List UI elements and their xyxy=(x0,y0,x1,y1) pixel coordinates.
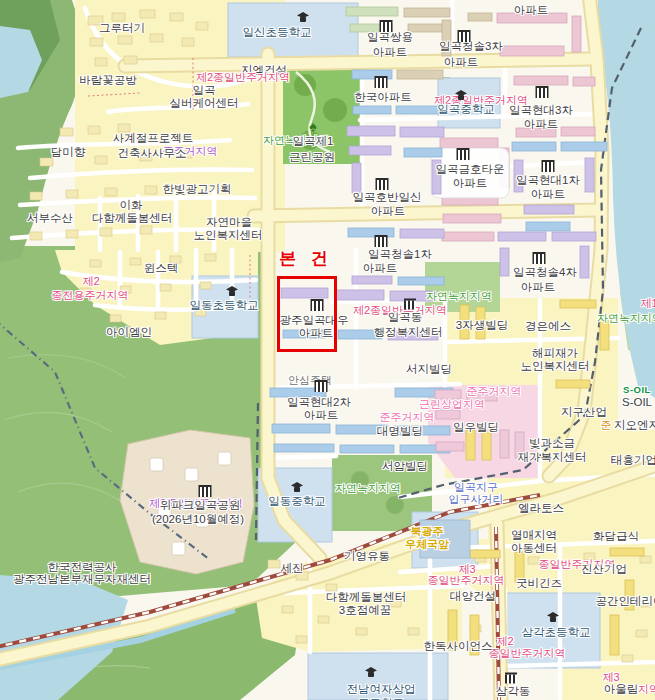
map-label: 3자생빌딩 xyxy=(456,319,508,332)
map-label: 일곡청솔1차 xyxy=(368,248,432,261)
map-label: 아파트 xyxy=(524,118,559,131)
map-label: 우체국앞 xyxy=(405,538,449,550)
apartment-icon xyxy=(542,160,555,172)
map-label: 준주거지역 xyxy=(467,385,522,397)
government-building-icon xyxy=(505,673,517,684)
map-label: 태흥기업 xyxy=(611,454,655,467)
map-label: 서암빌딩 xyxy=(382,460,428,473)
map-label: 아파트 xyxy=(363,262,398,275)
map-label: 윈스텍 xyxy=(144,262,179,275)
map-label: 아파트 xyxy=(521,281,556,294)
map-label: 자연녹지지역 xyxy=(597,312,655,324)
map-label: 일신초등학교 xyxy=(243,26,312,39)
map-label: 건축사사무소 xyxy=(118,147,187,160)
map-label: 광주전남본부재무자재센터 xyxy=(13,573,151,586)
map-label: 위파크일곡공원 xyxy=(160,499,241,512)
map-label: 일동중학교 xyxy=(268,495,326,508)
map-label: 다함께돌봄센터 xyxy=(326,591,407,604)
map-label: 일곡금호타운 xyxy=(436,163,505,176)
map-label: 빛과소금 xyxy=(529,437,575,450)
map-label: 종일반주거지역 xyxy=(428,574,505,586)
map-label: 지구산업 xyxy=(561,406,607,419)
map-label: 3호점예꿈 xyxy=(339,604,391,617)
map-label: 노인복지센터 xyxy=(521,360,590,373)
map-label: 이화 xyxy=(120,199,143,212)
map-label: 일곡쌍용 xyxy=(367,31,413,44)
map-label: 사계절프로젝트 xyxy=(113,132,194,145)
apartment-icon xyxy=(457,148,470,160)
map-label: 아울림 xyxy=(604,683,639,696)
map-label: 한국전력공사 xyxy=(48,561,117,574)
map-label: 아파트 xyxy=(373,46,408,59)
map-canvas[interactable]: 그루터기일신초등학교아파트일곡쌍용아파트일곡청솔3차아파트바람꽃공방일곡실버케어… xyxy=(0,0,655,700)
map-label: 아이엠인 xyxy=(106,326,152,339)
map-label: 담미향 xyxy=(51,146,86,159)
map-label: 진산기업 xyxy=(581,563,627,576)
tree-icon: ♠ xyxy=(309,119,316,133)
map-label: 근린상업지역 xyxy=(419,398,485,410)
map-label: 공간인테리어 xyxy=(596,595,655,608)
map-label: 노인복지센터 xyxy=(194,229,263,242)
map-label: 아파트 xyxy=(531,188,566,201)
map-label: 아파트 xyxy=(514,4,549,17)
map-label: 서부수산 xyxy=(27,212,73,225)
map-label: 그루터기 xyxy=(99,22,145,35)
map-label: 제2 xyxy=(82,275,99,287)
apartment-icon xyxy=(199,485,212,497)
map-label: 일곡현대2차 xyxy=(287,396,351,409)
map-label: 지오엔지 xyxy=(614,419,655,432)
map-label: 엘라토스 xyxy=(518,502,564,515)
government-building-icon xyxy=(404,299,416,310)
map-label: 기영유통 xyxy=(344,550,390,563)
map-label: 일곡동 xyxy=(388,311,423,324)
map-label: 전남여자상업 xyxy=(347,683,416,696)
school-icon xyxy=(226,286,238,296)
school-icon xyxy=(297,12,309,22)
map-label: 아파트 xyxy=(453,177,488,190)
apartment-icon xyxy=(375,76,388,88)
map-label: 제2종일반주거지역 xyxy=(196,71,290,83)
map-label: 제2 xyxy=(496,635,513,647)
map-label: 삼각동 xyxy=(496,685,531,698)
map-label: 일곡청솔3차 xyxy=(439,40,503,53)
map-label: 입구사거리 xyxy=(449,493,504,505)
map-label: 실버케어센터 xyxy=(170,97,239,110)
map-label: 일곡현대1차 xyxy=(516,174,580,187)
map-label: 준 xyxy=(601,419,612,431)
map-label: 세진 xyxy=(281,562,304,575)
map-label: 해피재가 xyxy=(532,347,578,360)
map-label: 일곡청솔4차 xyxy=(513,266,577,279)
map-label: 북광주 xyxy=(411,525,444,537)
map-label: 행정복지센터 xyxy=(374,326,443,339)
apartment-icon xyxy=(315,380,328,392)
map-label: 근린공원 xyxy=(289,151,335,164)
map-label: 지역 xyxy=(638,683,655,695)
map-label: 경은에스 xyxy=(525,320,571,333)
subject-property-box xyxy=(277,276,337,352)
map-label: 일곡호반일신 xyxy=(353,191,422,204)
map-label: 일곡 xyxy=(193,84,216,97)
map-label: 자연마을 xyxy=(206,216,252,229)
school-icon xyxy=(547,612,559,622)
apartment-icon xyxy=(458,30,471,42)
map-label: 일곡중학교 xyxy=(437,103,495,116)
map-label: S-OIL xyxy=(623,385,651,395)
map-label: 한독사이언스 xyxy=(424,640,493,653)
map-label: 종일반주거지역 xyxy=(489,647,566,659)
map-label: S-OIL xyxy=(622,396,652,409)
map-label: 삼각초등학교 xyxy=(522,626,591,639)
map-label: 일동초등학교 xyxy=(190,299,259,312)
map-label: 제3 xyxy=(602,671,619,683)
map-label: 한빛광고기획 xyxy=(163,183,232,196)
map-label: 제1 xyxy=(640,297,655,309)
map-label: 한국아파트 xyxy=(354,91,412,104)
map-label: 다함께돌봄센터 xyxy=(92,212,173,225)
school-icon xyxy=(365,667,377,677)
map-label: 준주거지역 xyxy=(380,411,435,423)
map-label: 일우빌딩 xyxy=(453,421,499,434)
map-label: 화담급식 xyxy=(593,530,639,543)
map-label: (2026년10월예정) xyxy=(152,513,244,526)
school-icon xyxy=(455,90,467,100)
apartment-icon xyxy=(376,178,389,190)
map-label: 대양건설 xyxy=(450,590,496,603)
map-label: 종전용주거지역 xyxy=(52,289,129,301)
apartment-icon xyxy=(375,235,388,247)
map-label: 굿비긴즈 xyxy=(516,577,562,590)
map-label: 아동센터 xyxy=(511,542,557,555)
map-label: 아파트 xyxy=(371,205,406,218)
map-label: 일곡현대3차 xyxy=(509,104,573,117)
apartment-icon xyxy=(533,252,546,264)
map-label: 재가복지센터 xyxy=(518,451,587,464)
map-label: 열매지역 xyxy=(511,529,557,542)
map-label: 일곡제1 xyxy=(293,135,334,148)
school-icon xyxy=(291,482,303,492)
map-label: 자연녹지지역 xyxy=(335,482,401,494)
map-label: 대명빌딩 xyxy=(377,425,423,438)
map-label: 자연녹지지역 xyxy=(426,290,492,302)
map-label: 서지빌딩 xyxy=(406,363,452,376)
subject-marker-label: 본 건 xyxy=(279,250,333,269)
map-label: 바람꽃공방 xyxy=(79,74,137,87)
apartment-icon xyxy=(380,20,393,32)
map-label: 아파트 xyxy=(304,409,339,422)
apartment-icon xyxy=(536,86,549,98)
map-label: 아파트 xyxy=(444,56,479,69)
map-label: 일곡지구 xyxy=(454,481,498,493)
